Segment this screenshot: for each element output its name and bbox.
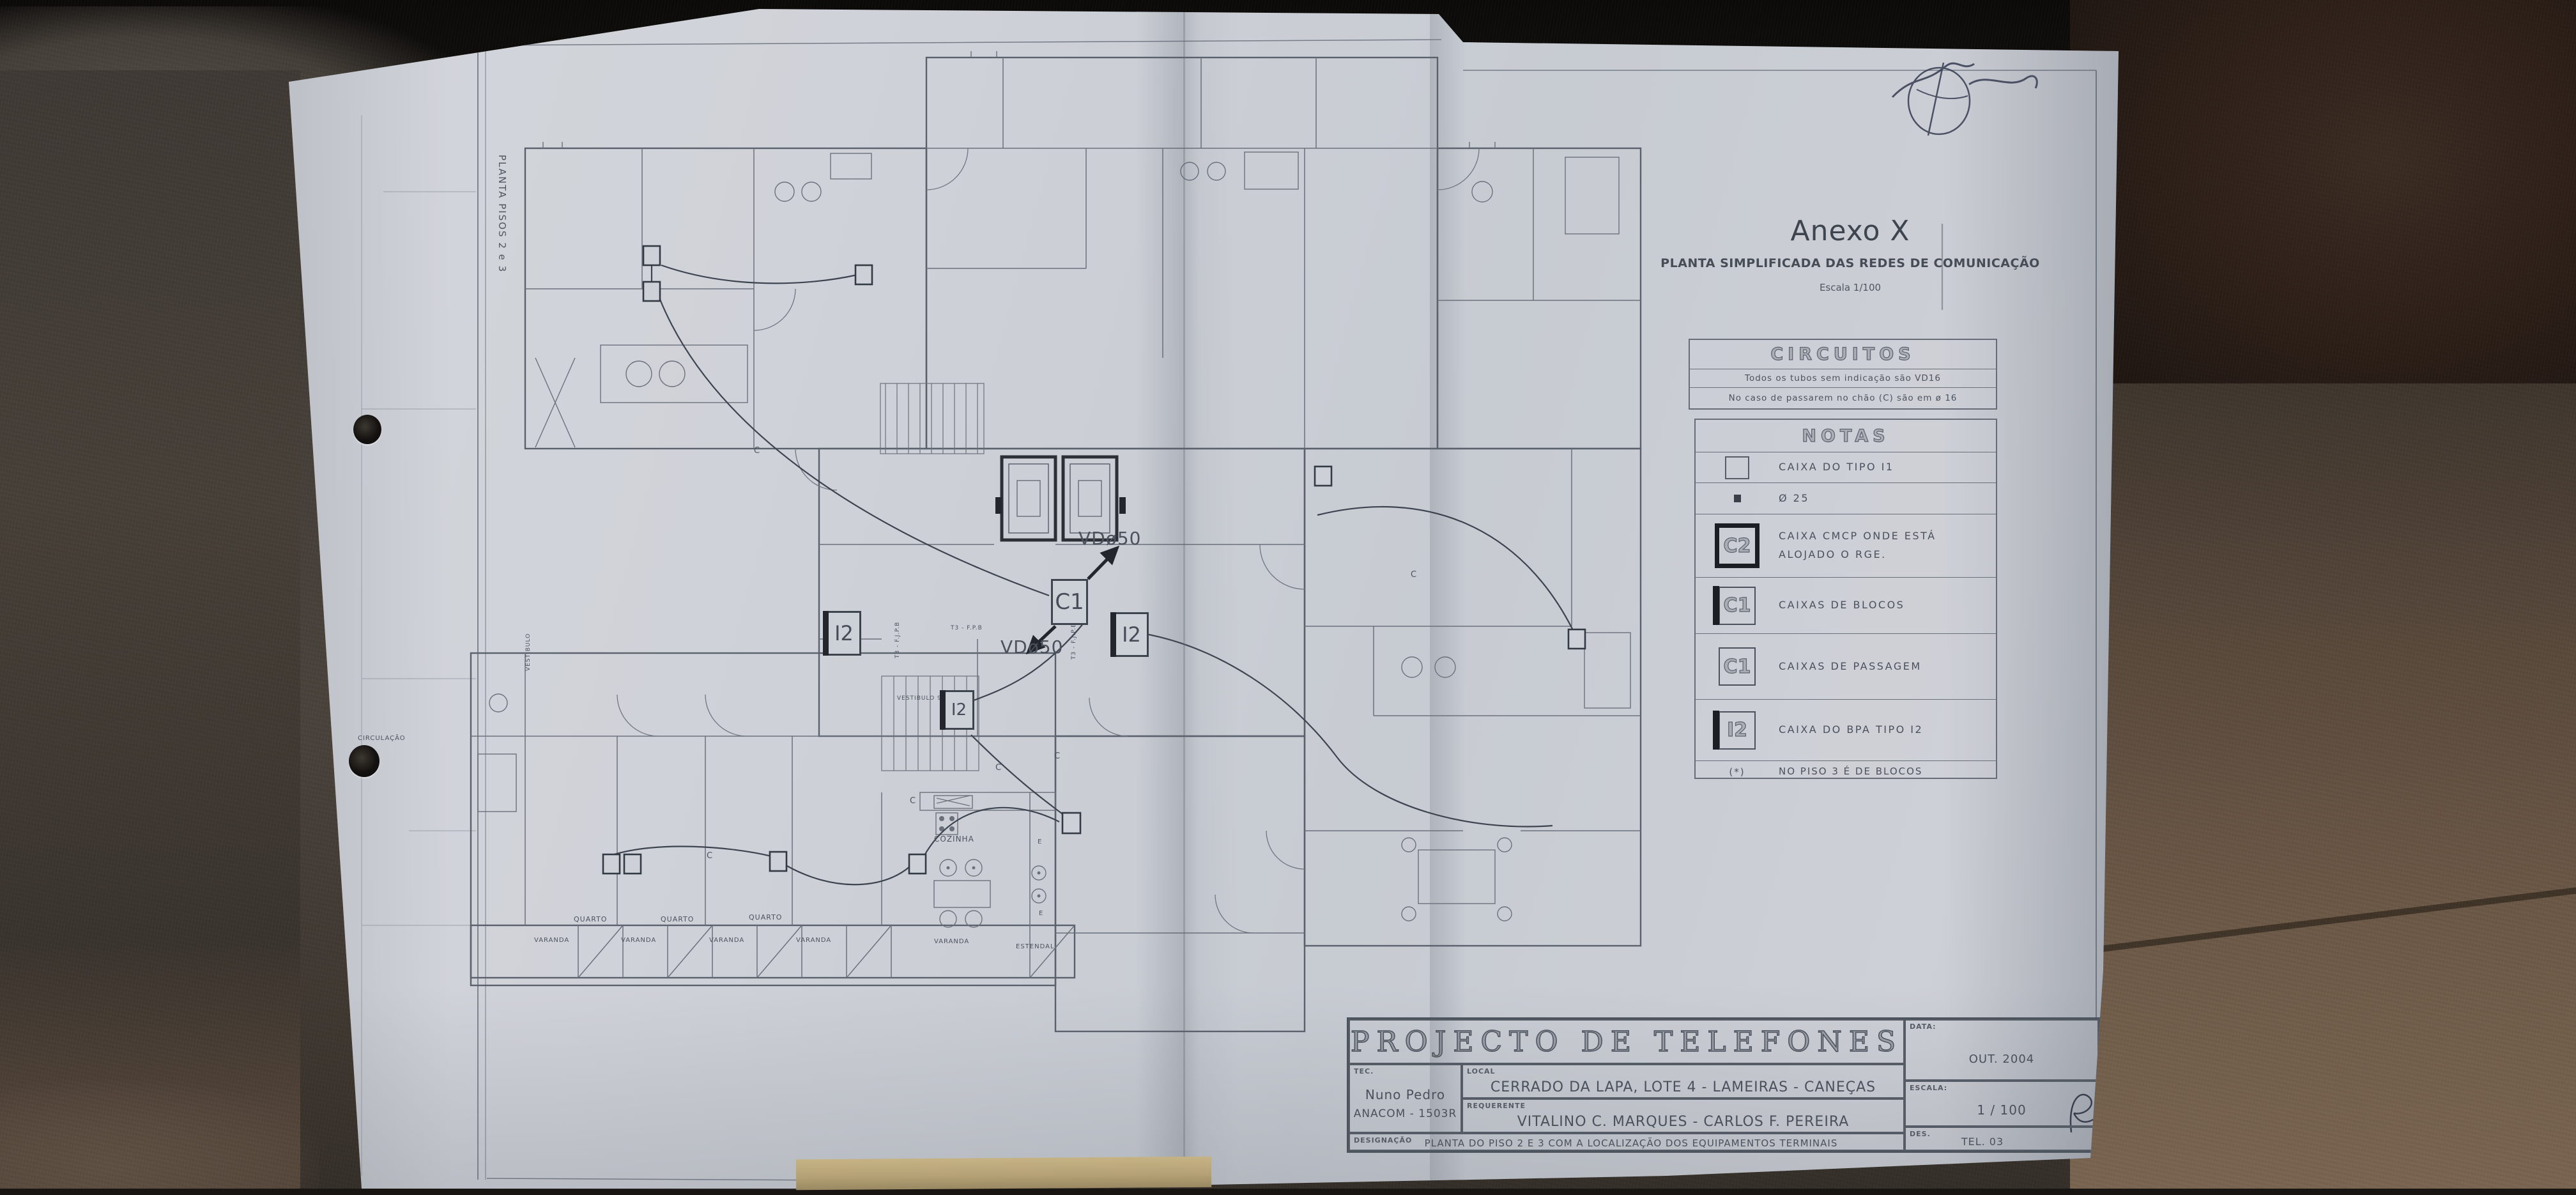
local-label: LOCAL — [1467, 1067, 1496, 1075]
plan-label: C — [754, 446, 760, 456]
plan-label: VARANDA — [621, 937, 656, 944]
plan-label: VDø50 — [1000, 636, 1063, 658]
drawing-number-cell: DES. TEL. 03 — [1905, 1127, 2099, 1151]
plan-label: T3 - F.P.B — [951, 625, 983, 631]
plan-label: T3 - F.J.P.B — [1071, 623, 1077, 659]
plan-label: VDø50 — [1078, 528, 1141, 549]
requerente-label: REQUERENTE — [1467, 1102, 1526, 1110]
plan-label: VESTIBULO — [525, 633, 532, 671]
plan-label: VARANDA — [534, 937, 569, 944]
technician-registration: ANACOM - 1503R — [1350, 1107, 1460, 1120]
plan-label: VARANDA — [709, 937, 744, 944]
plan-label: COZINHA — [934, 835, 974, 844]
plan-label: CIRCULAÇÃO — [358, 735, 406, 742]
plan-label: C — [707, 851, 713, 861]
location-cell: LOCAL CERRADO DA LAPA, LOTE 4 - LAMEIRAS… — [1462, 1064, 1905, 1099]
plan-label: C — [1411, 570, 1417, 580]
plan-label: QUARTO — [749, 913, 782, 921]
applicant-cell: REQUERENTE VITALINO C. MARQUES - CARLOS … — [1462, 1099, 1905, 1133]
date-value: OUT. 2004 — [1906, 1052, 2097, 1066]
plan-label: VARANDA — [796, 937, 831, 944]
under-sheet-edge — [796, 1157, 1211, 1191]
plan-label: VARANDA — [934, 938, 969, 945]
location-value: CERRADO DA LAPA, LOTE 4 - LAMEIRAS - CAN… — [1463, 1079, 1903, 1095]
plan-label: ESTENDAL — [1016, 943, 1055, 950]
technician-name: Nuno Pedro — [1350, 1087, 1460, 1102]
designation-value: PLANTA DO PISO 2 E 3 COM A LOCALIZAÇÃO D… — [1388, 1137, 1874, 1149]
plan-junction-box: I2 — [827, 611, 861, 656]
escala-label: ESCALA: — [1910, 1084, 1947, 1092]
plan-label: C — [910, 796, 916, 806]
scale-cell: ESCALA: 1 / 100 — [1905, 1081, 2099, 1127]
plan-junction-box: I2 — [944, 690, 974, 730]
punch-hole-top — [353, 415, 381, 444]
punch-hole-bottom — [349, 745, 379, 777]
plan-junction-box: C1 — [1051, 579, 1088, 625]
plan-label: E — [1039, 910, 1043, 917]
plan-label: C — [995, 763, 1002, 773]
plan-label: E — [1038, 838, 1042, 845]
plan-label: QUARTO — [574, 915, 607, 923]
data-label: DATA: — [1910, 1022, 1936, 1031]
date-cell: DATA: OUT. 2004 — [1905, 1019, 2099, 1081]
designation-cell: DESIGNAÇÃO PLANTA DO PISO 2 E 3 COM A LO… — [1349, 1133, 1905, 1151]
drawing-number-value: TEL. 03 — [1887, 1136, 2078, 1148]
plan-junction-box: I2 — [1114, 612, 1149, 657]
tec-label: TEC. — [1354, 1067, 1374, 1075]
project-title: PROJECTO DE TELEFONES — [1349, 1019, 1905, 1064]
scale-value: 1 / 100 — [1906, 1102, 2097, 1118]
title-block: PROJECTO DE TELEFONES TEC. Nuno Pedro AN… — [1347, 1017, 2101, 1153]
plan-label: C — [1054, 752, 1061, 761]
applicant-value: VITALINO C. MARQUES - CARLOS F. PEREIRA — [1463, 1114, 1903, 1130]
technician-cell: TEC. Nuno Pedro ANACOM - 1503R — [1349, 1064, 1462, 1133]
plan-label: T3 - F.J.P.B — [894, 622, 901, 658]
plan-label: QUARTO — [661, 915, 694, 923]
